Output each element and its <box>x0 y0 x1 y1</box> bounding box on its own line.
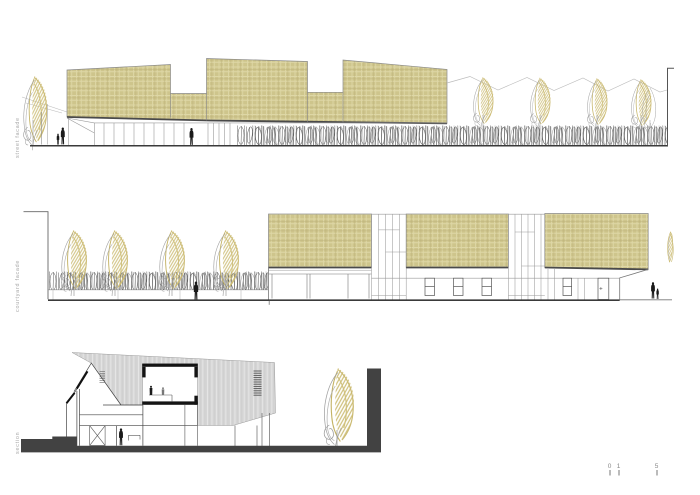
svg-text:street facade: street facade <box>15 117 21 158</box>
svg-text:5: 5 <box>655 463 659 470</box>
svg-text:1: 1 <box>617 463 621 470</box>
svg-text:0: 0 <box>608 463 612 470</box>
svg-text:courtyard facade: courtyard facade <box>15 260 21 312</box>
svg-text:section: section <box>15 432 21 454</box>
